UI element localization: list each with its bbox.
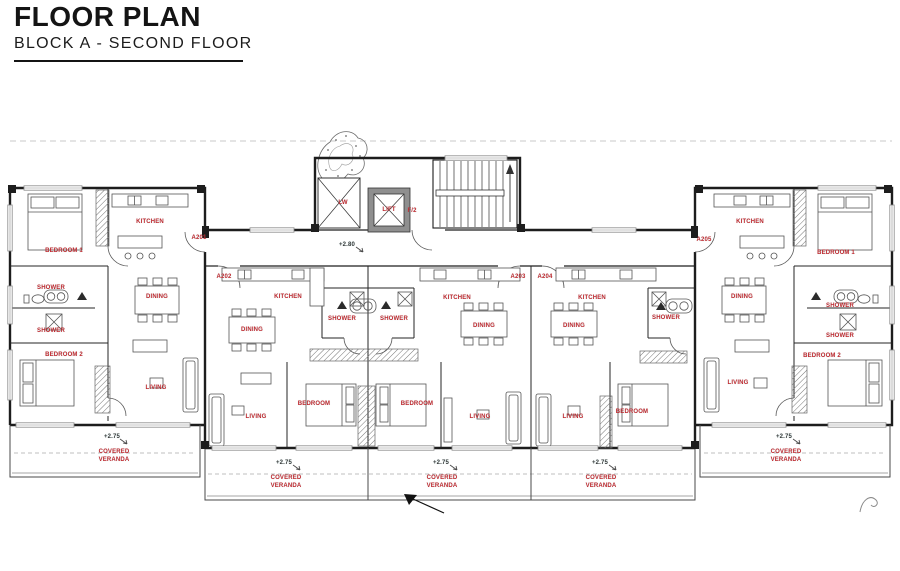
room-label-a203-bedroom: BEDROOM	[401, 401, 433, 407]
room-label-a201-bedroom1: BEDROOM 1	[45, 248, 83, 254]
apartment-number-a201: A201	[192, 235, 207, 241]
apartment-number-a202: A202	[217, 274, 232, 280]
room-label-a204-living: LIVING	[563, 414, 584, 420]
room-label-a205-dining: DINING	[731, 294, 753, 300]
room-label-a202-living: LIVING	[246, 414, 267, 420]
apartment-number-a204: A204	[538, 274, 553, 280]
core-label-light-well: LW	[338, 200, 347, 206]
room-label-a205-bedroom2: BEDROOM 2	[803, 353, 841, 359]
room-label-a201-shower-top: SHOWER	[37, 285, 65, 291]
elevation-label-a205-veranda: +2.75	[776, 434, 792, 440]
veranda-label-a202: COVERED VERANDA	[263, 474, 309, 490]
room-label-a203-shower: SHOWER	[380, 316, 408, 322]
room-label-a201-living: LIVING	[146, 385, 167, 391]
elevation-label-corridor: +2.80	[339, 242, 355, 248]
elevation-label-a204-veranda: +2.75	[592, 460, 608, 466]
room-label-a201-shower-bottom: SHOWER	[37, 328, 65, 334]
entry-wall-gaps	[203, 232, 698, 252]
elevation-label-a202-veranda: +2.75	[276, 460, 292, 466]
room-label-a201-bedroom2: BEDROOM 2	[45, 352, 83, 358]
veranda-label-a201: COVERED VERANDA	[91, 448, 137, 464]
room-label-a205-kitchen: KITCHEN	[736, 219, 764, 225]
room-label-a204-bedroom: BEDROOM	[616, 409, 648, 415]
kitchen-counters	[112, 194, 790, 306]
room-label-a204-shower: SHOWER	[652, 315, 680, 321]
apartment-number-a203: A203	[511, 274, 526, 280]
north-arrow	[404, 494, 444, 513]
room-label-a203-kitchen: KITCHEN	[443, 295, 471, 301]
veranda-label-a205: COVERED VERANDA	[763, 448, 809, 464]
elevation-label-a201-veranda: +2.75	[104, 434, 120, 440]
room-label-a202-shower: SHOWER	[328, 316, 356, 322]
door-swing-arcs	[108, 230, 794, 416]
room-label-a201-dining: DINING	[146, 294, 168, 300]
room-label-a205-bedroom1: BEDROOM 1	[817, 250, 855, 256]
room-label-a202-dining: DINING	[241, 327, 263, 333]
room-label-a204-dining: DINING	[563, 323, 585, 329]
room-label-a203-dining: DINING	[473, 323, 495, 329]
room-label-a205-shower-top: SHOWER	[826, 303, 854, 309]
room-label-a202-bedroom: BEDROOM	[298, 401, 330, 407]
elevation-label-a203-veranda: +2.75	[433, 460, 449, 466]
staircase	[433, 160, 517, 228]
room-label-a201-kitchen: KITCHEN	[136, 219, 164, 225]
corner-squiggle-mark	[860, 498, 877, 512]
core-label-lift: LIFT	[382, 207, 395, 213]
room-label-a204-kitchen: KITCHEN	[578, 295, 606, 301]
floor-plan-page: FLOOR PLAN BLOCK A - SECOND FLOOR	[0, 0, 900, 571]
core-label-fire-door: F/2	[407, 208, 416, 214]
room-label-a202-kitchen: KITCHEN	[274, 294, 302, 300]
veranda-label-a204: COVERED VERANDA	[578, 474, 624, 490]
floor-plan-drawing: A201 BEDROOM 1 KITCHEN SHOWER DINING SHO…	[0, 0, 900, 571]
room-label-a203-living: LIVING	[470, 414, 491, 420]
room-label-a205-shower-bottom: SHOWER	[826, 333, 854, 339]
room-label-a205-living: LIVING	[728, 380, 749, 386]
apartment-number-a205: A205	[697, 237, 712, 243]
veranda-label-a203: COVERED VERANDA	[419, 474, 465, 490]
corridor-walls	[205, 230, 695, 266]
